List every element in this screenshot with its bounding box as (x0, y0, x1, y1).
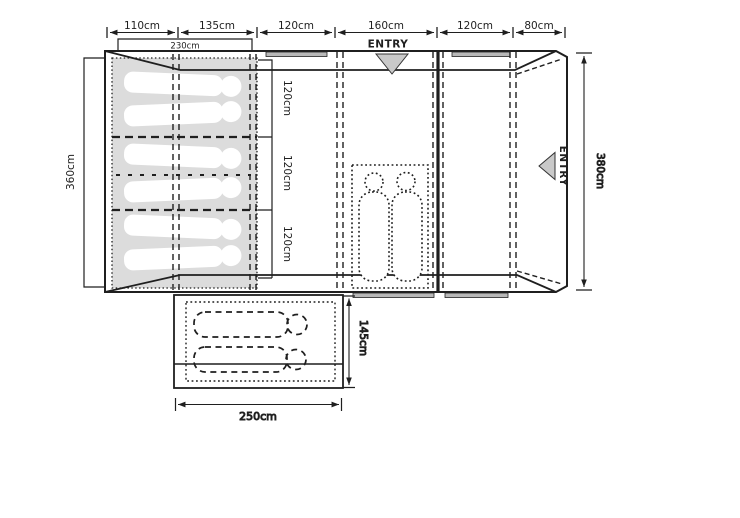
canopy-bag-head (287, 315, 307, 335)
canopy-dotted-inner (186, 302, 335, 381)
dim-label-360: 360cm (65, 154, 77, 190)
dim-label-160: 160cm (368, 20, 404, 32)
entry-top-arrow-icon (376, 54, 408, 74)
dimension-380: 380cm (576, 53, 606, 290)
inner-tent-middle (352, 165, 428, 288)
entry-side-arrow-icon (539, 153, 555, 180)
dim-label-120a: 120cm (278, 20, 314, 32)
dimension-top-row: 110cm 135cm 120cm 160cm 120cm 80cm (107, 20, 565, 38)
dim-label-230: 230cm (170, 42, 199, 52)
figure-head (365, 173, 383, 191)
figure-head (397, 173, 415, 191)
dim-label-145: 145cm (357, 320, 369, 356)
bracket-360 (84, 58, 104, 287)
dimension-145: 145cm (343, 296, 369, 388)
dim-label-110: 110cm (124, 20, 160, 32)
canopy-bag-body (194, 312, 288, 337)
dim-label-berth-2: 120cm (281, 155, 293, 191)
dimension-250: 250cm (176, 398, 342, 423)
figure-body (359, 192, 389, 281)
canopy-bag-head (286, 350, 306, 370)
entry-side-label: ENTRY (557, 146, 569, 187)
tent-floorplan-svg: 110cm 135cm 120cm 160cm 120cm 80cm 230cm… (0, 0, 740, 518)
dim-label-80: 80cm (524, 20, 553, 32)
dimension-230: 230cm (118, 39, 252, 52)
dim-label-120b: 120cm (457, 20, 493, 32)
figure-body (392, 192, 422, 281)
bracket-berths (258, 60, 272, 278)
canopy-extension (174, 295, 343, 388)
dim-label-berth-3: 120cm (281, 226, 293, 262)
dim-label-380: 380cm (594, 153, 606, 189)
entry-side: ENTRY (539, 146, 569, 187)
dimension-berths: 120cm 120cm 120cm (258, 60, 293, 278)
entry-top-label: ENTRY (368, 39, 409, 51)
dim-label-berth-1: 120cm (281, 80, 293, 116)
canopy-bag-body (194, 347, 287, 372)
tent-floorplan-page: 110cm 135cm 120cm 160cm 120cm 80cm 230cm… (0, 0, 740, 518)
dimension-360: 360cm (65, 58, 104, 287)
canopy-sleeping-bags (194, 312, 307, 372)
window-bar (266, 52, 327, 57)
dim-label-135: 135cm (199, 20, 235, 32)
window-bar (353, 293, 434, 298)
dim-label-250: 250cm (239, 410, 277, 423)
window-bar (452, 52, 510, 57)
entry-top: ENTRY (368, 39, 409, 75)
canopy-outline (174, 295, 343, 388)
window-bar (445, 293, 508, 298)
